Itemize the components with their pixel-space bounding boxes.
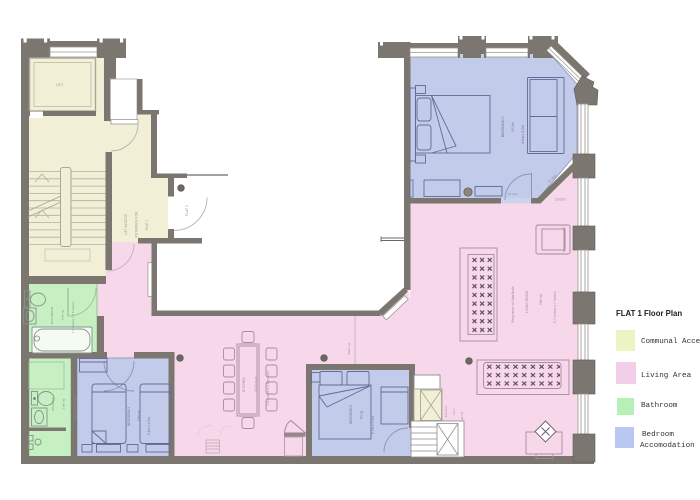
- svg-text:BEDROOM 2: BEDROOM 2: [127, 407, 131, 426]
- svg-text:Bedroom: Bedroom: [642, 431, 674, 439]
- svg-text:FLAT 2: FLAT 2: [185, 205, 189, 216]
- svg-text:7m sq: 7m sq: [360, 411, 364, 420]
- svg-text:4.5m x 3.3m: 4.5m x 3.3m: [521, 125, 525, 144]
- svg-text:15.0m: 15.0m: [511, 122, 515, 132]
- svg-text:20m 0d: 20m 0d: [539, 294, 543, 305]
- svg-text:Stairs Up: Stairs Up: [347, 342, 351, 355]
- svg-text:5.7 metres x 7 meters: 5.7 metres x 7 meters: [553, 291, 557, 323]
- svg-text:16.81sq m: 16.81sq m: [254, 376, 258, 392]
- svg-text:BEDROOM 1: BEDROOM 1: [501, 117, 505, 137]
- svg-text:FLAT 1 Floor Plan: FLAT 1 Floor Plan: [616, 309, 682, 318]
- svg-text:3.1m x 4.5m: 3.1m x 4.5m: [147, 417, 151, 435]
- svg-text:2.7m x 2.4m: 2.7m x 2.4m: [371, 416, 375, 434]
- svg-text:Living Area: Living Area: [641, 372, 692, 380]
- svg-text:ENTRANCE FOR: ENTRANCE FOR: [135, 211, 139, 238]
- svg-text:Cabin B: Cabin B: [460, 412, 464, 422]
- svg-text:BATHROOM: BATHROOM: [50, 306, 54, 324]
- svg-text:Entrance: Entrance: [444, 405, 448, 417]
- svg-text:2.9 metres x 3.9 metres: 2.9 metres x 3.9 metres: [266, 371, 270, 406]
- svg-text:KITCHEN: KITCHEN: [242, 377, 246, 392]
- svg-text:Bathroom: Bathroom: [641, 402, 678, 410]
- svg-text:2.8m sq: 2.8m sq: [62, 398, 66, 409]
- svg-text:From: From: [452, 408, 456, 415]
- svg-text:LIFT: LIFT: [56, 83, 64, 87]
- svg-text:BEDROOM 3: BEDROOM 3: [349, 405, 353, 424]
- svg-text:1.9m x 1.2 metres: 1.9m x 1.2 metres: [73, 396, 77, 421]
- svg-text:4.6m sq: 4.6m sq: [61, 309, 65, 320]
- svg-text:15m sq: 15m sq: [137, 410, 141, 421]
- svg-text:FLAT 1: FLAT 1: [145, 219, 149, 230]
- svg-text:Communal Access: Communal Access: [641, 338, 700, 346]
- svg-text:90 deg: 90 deg: [508, 192, 518, 196]
- svg-text:LIVING ROOM: LIVING ROOM: [525, 291, 529, 313]
- svg-text:Accomodation: Accomodation: [640, 442, 695, 450]
- svg-text:EN-SUITE: EN-SUITE: [51, 397, 55, 411]
- svg-text:16.05m: 16.05m: [555, 198, 566, 202]
- svg-text:1.9 metres x 1.5 metres: 1.9 metres x 1.5 metres: [71, 301, 75, 333]
- svg-text:Sleep area on Sofa Beds: Sleep area on Sofa Beds: [511, 286, 515, 323]
- svg-text:LIFT ACCESS: LIFT ACCESS: [124, 213, 128, 235]
